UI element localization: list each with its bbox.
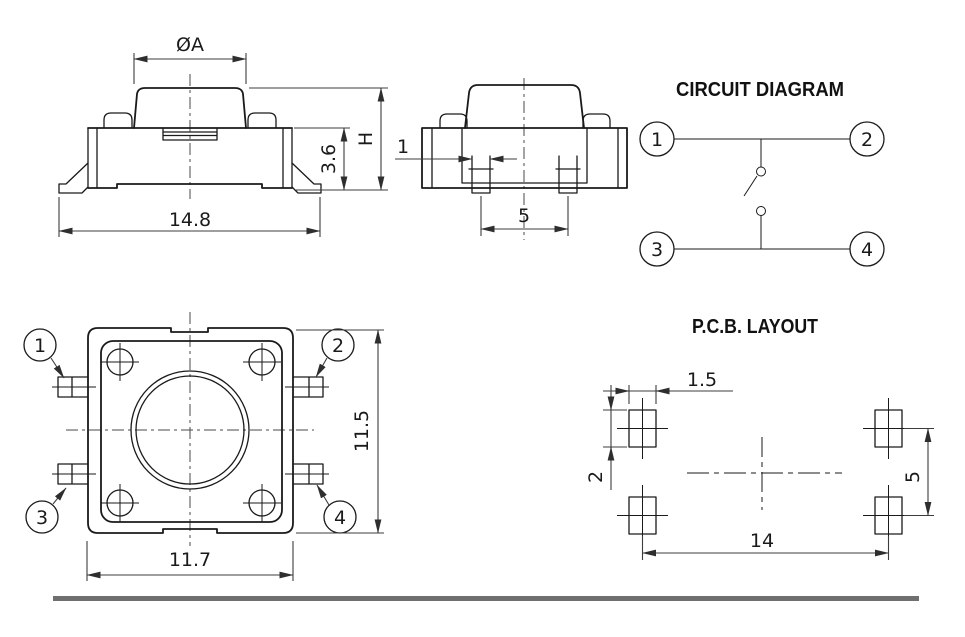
dim-pin-width-label: 1 [397,136,409,158]
pcb-layout: P.C.B. LAYOUT 1.5 2 5 14 [585,316,934,560]
dim-pad-pitch-v-label: 5 [902,471,924,483]
front-right-ear [248,113,276,128]
circuit-wires [674,139,850,249]
dim-cap-diameter-label: ØA [176,34,204,56]
dim-overall-width-label: 14.8 [169,209,211,231]
switch-contact-top [757,167,766,176]
balloon-2-leader [316,358,327,377]
dim-pad-pitch-h-label: 14 [750,530,774,552]
terminal-1-label: 1 [651,129,663,151]
dim-pin-pitch-label: 5 [518,205,530,227]
front-left-lead [59,163,88,193]
switch-contact-bottom [757,207,766,216]
circuit-diagram-title: CIRCUIT DIAGRAM [676,79,844,101]
balloon-1-leader [51,358,64,378]
pcb-pads [617,398,914,546]
side-right-ear [583,114,610,128]
balloon-3-leader [53,488,66,504]
balloon-3-label: 3 [36,507,48,529]
tactile-switch-drawing: ØA 14.8 3.6 H 1 5 CIRCUIT DIAGRAM [0,0,965,637]
side-left-ear [440,114,467,128]
terminal-4-label: 4 [861,239,873,261]
side-body-details [432,128,618,188]
balloon-2-label: 2 [332,335,344,357]
terminal-2-label: 2 [861,129,873,151]
circuit-diagram: CIRCUIT DIAGRAM 1 2 3 4 [640,79,884,266]
balloon-4-leader [317,485,329,505]
front-view: ØA 14.8 3.6 H [59,34,388,237]
dim-total-height-label: H [355,132,377,146]
dim-top-height-label: 11.5 [351,410,373,452]
pad-crosshairs [617,398,914,546]
top-body-inner [101,341,282,522]
dim-top-width-label: 11.7 [169,549,211,571]
technical-drawing-page: ØA 14.8 3.6 H 1 5 CIRCUIT DIAGRAM [0,0,965,637]
switch-arm [744,176,757,196]
side-view: 1 5 [395,78,627,240]
pcb-layout-title: P.C.B. LAYOUT [692,316,818,338]
front-right-lead [292,163,321,193]
dim-body-height-label: 3.6 [318,144,340,174]
terminal-3-label: 3 [651,239,663,261]
top-view: 1 2 3 4 11.5 11.7 [24,312,384,581]
balloon-1-label: 1 [34,335,46,357]
top-corner-rivets [101,343,281,522]
front-body-bottom [88,184,292,188]
footer-divider-bar [53,596,919,601]
front-left-ear [104,113,132,128]
balloon-4-label: 4 [334,507,346,529]
dim-pad-height-label: 2 [585,471,607,483]
dim-pad-width-label: 1.5 [687,369,717,391]
